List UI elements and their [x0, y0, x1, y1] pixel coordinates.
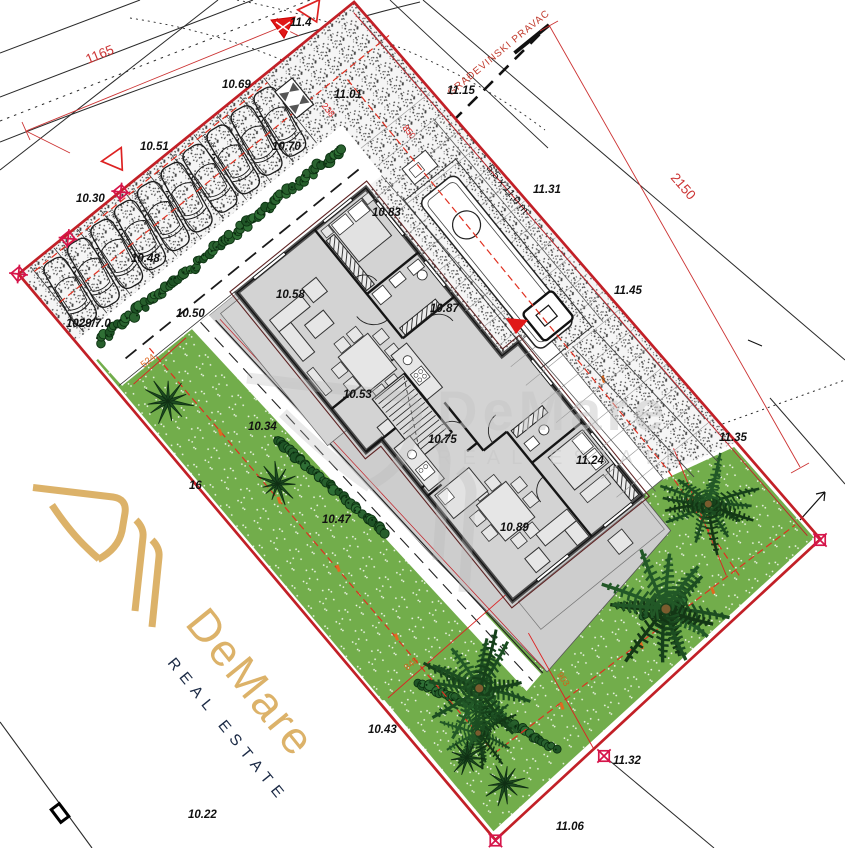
- svg-text:11.4: 11.4: [290, 17, 312, 29]
- svg-text:10.22: 10.22: [188, 809, 217, 821]
- svg-text:10.87: 10.87: [430, 303, 459, 315]
- svg-text:11.45: 11.45: [614, 285, 643, 297]
- svg-text:10.75: 10.75: [428, 434, 457, 446]
- svg-text:11.31: 11.31: [533, 184, 561, 196]
- svg-text:10.43: 10.43: [368, 724, 397, 736]
- svg-text:11.24: 11.24: [576, 455, 605, 467]
- svg-text:DeMare: DeMare: [437, 379, 669, 442]
- svg-text:11.35: 11.35: [719, 432, 748, 444]
- svg-text:1029/7.0: 1029/7.0: [66, 318, 111, 330]
- svg-text:10.53: 10.53: [343, 389, 372, 401]
- svg-text:11.15: 11.15: [447, 85, 476, 97]
- svg-text:10.48: 10.48: [131, 253, 160, 265]
- svg-text:10.30: 10.30: [76, 193, 105, 205]
- svg-text:10.83: 10.83: [372, 207, 401, 219]
- svg-text:10.51: 10.51: [140, 141, 169, 153]
- svg-text:10.50: 10.50: [176, 308, 205, 320]
- svg-text:11.06: 11.06: [556, 821, 585, 833]
- svg-text:11.01: 11.01: [334, 89, 362, 101]
- svg-text:10.47: 10.47: [322, 514, 351, 526]
- svg-text:10.34: 10.34: [248, 421, 277, 433]
- svg-text:10.89: 10.89: [500, 522, 529, 534]
- svg-text:REAL ESTATE: REAL ESTATE: [437, 447, 690, 469]
- svg-text:16: 16: [189, 480, 202, 492]
- svg-text:11.32: 11.32: [613, 755, 642, 767]
- svg-text:10.70: 10.70: [272, 141, 301, 153]
- svg-text:10.58: 10.58: [276, 289, 305, 301]
- svg-text:10.69: 10.69: [222, 79, 251, 91]
